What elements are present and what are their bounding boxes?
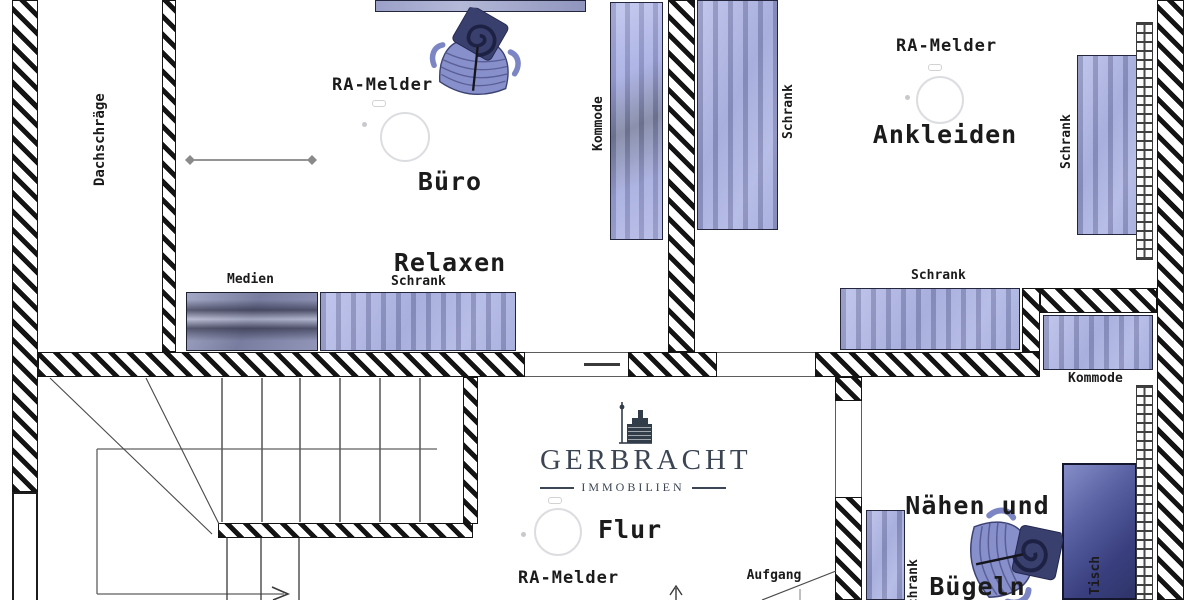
stair-treads-lower bbox=[227, 538, 299, 600]
logo-tagline-text: IMMOBILIEN bbox=[581, 480, 684, 495]
ra-melder-label-ankleiden: RA-Melder bbox=[896, 36, 997, 56]
room-name-buero-line2: Relaxen bbox=[350, 249, 550, 276]
schrank-label-ankleiden-middle: Schrank bbox=[911, 268, 966, 283]
stair-treads-upper bbox=[222, 378, 420, 522]
schrank-label-ankleiden-right: Schrank bbox=[1059, 111, 1075, 169]
room-name-buero: Büro Relaxen bbox=[350, 114, 550, 330]
stair-cut-lines bbox=[50, 378, 219, 534]
dachschraege-label: Dachschräge bbox=[92, 90, 108, 186]
gerbracht-logo: GERBRACHT IMMOBILIEN bbox=[540, 398, 726, 495]
schrank-label-naehen: Schrank bbox=[906, 556, 922, 600]
logo-rule-left bbox=[540, 487, 574, 489]
kommode-label-buero: Kommode bbox=[591, 93, 607, 151]
kommode-label-naehen: Kommode bbox=[1068, 371, 1123, 386]
aufgang-dachgeschoss-label: Aufgang Dachgeschoss bbox=[718, 541, 830, 600]
medien-label: Medien bbox=[227, 272, 274, 287]
ra-melder-label-flur: RA-Melder bbox=[518, 568, 619, 588]
logo-brand-text: GERBRACHT bbox=[540, 444, 726, 477]
schrank-label-buero: Schrank bbox=[391, 274, 446, 289]
room-name-buero-line1: Büro bbox=[350, 168, 550, 195]
room-name-naehen-line1: Nähen und bbox=[885, 492, 1070, 519]
knee-wall-dimension-line bbox=[185, 155, 317, 165]
logo-rule-right bbox=[692, 487, 726, 489]
room-name-flur: Flur bbox=[598, 516, 662, 543]
tisch-label: Tisch bbox=[1088, 553, 1104, 595]
schrank-label-ankleiden-left: Schrank bbox=[781, 81, 797, 139]
room-name-ankleiden: Ankleiden bbox=[860, 121, 1030, 148]
aufgang-line1: Aufgang bbox=[718, 569, 830, 583]
ra-melder-label-buero: RA-Melder bbox=[332, 75, 433, 95]
skyline-tower-icon bbox=[613, 398, 653, 444]
logo-tagline-row: IMMOBILIEN bbox=[540, 480, 726, 495]
floor-plan: Dachschräge RA-Melder Büro Relaxen Medie… bbox=[0, 0, 1200, 600]
stair-outline bbox=[97, 449, 437, 594]
